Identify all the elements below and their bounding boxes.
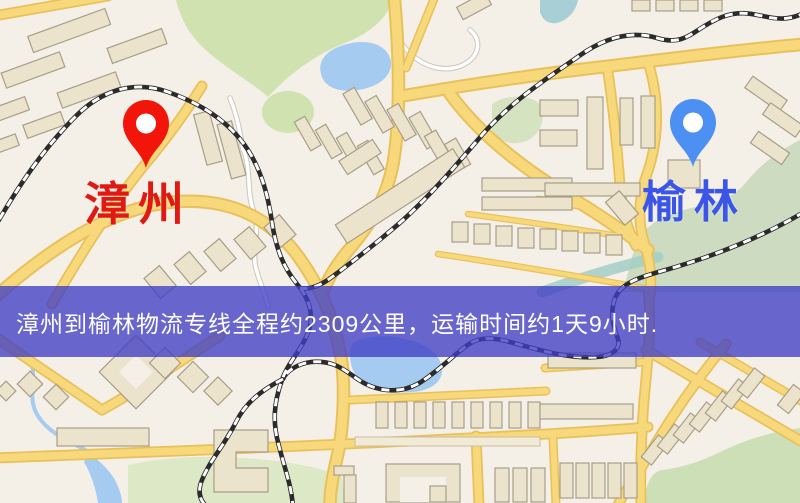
pin-hole — [683, 113, 703, 133]
red-location-pin-icon[interactable] — [118, 97, 174, 171]
pin-shape — [118, 97, 174, 171]
pin-shape — [665, 96, 721, 170]
basemap — [0, 0, 800, 503]
route-info-banner: 漳州到榆林物流专线全程约2309公里，运输时间约1天9小时. — [0, 286, 800, 357]
destination-city-label: 榆林 — [642, 181, 746, 225]
pin-body — [123, 100, 169, 168]
pin-hole — [136, 114, 156, 134]
map-canvas: 漳州 榆林 漳州到榆林物流专线全程约2309公里，运输时间约1天9小时. — [0, 0, 800, 503]
origin-city-label: 漳州 — [84, 181, 192, 227]
route-info-text: 漳州到榆林物流专线全程约2309公里，运输时间约1天9小时. — [16, 305, 658, 339]
blue-location-pin-icon[interactable] — [665, 96, 721, 170]
pin-body — [670, 99, 716, 167]
